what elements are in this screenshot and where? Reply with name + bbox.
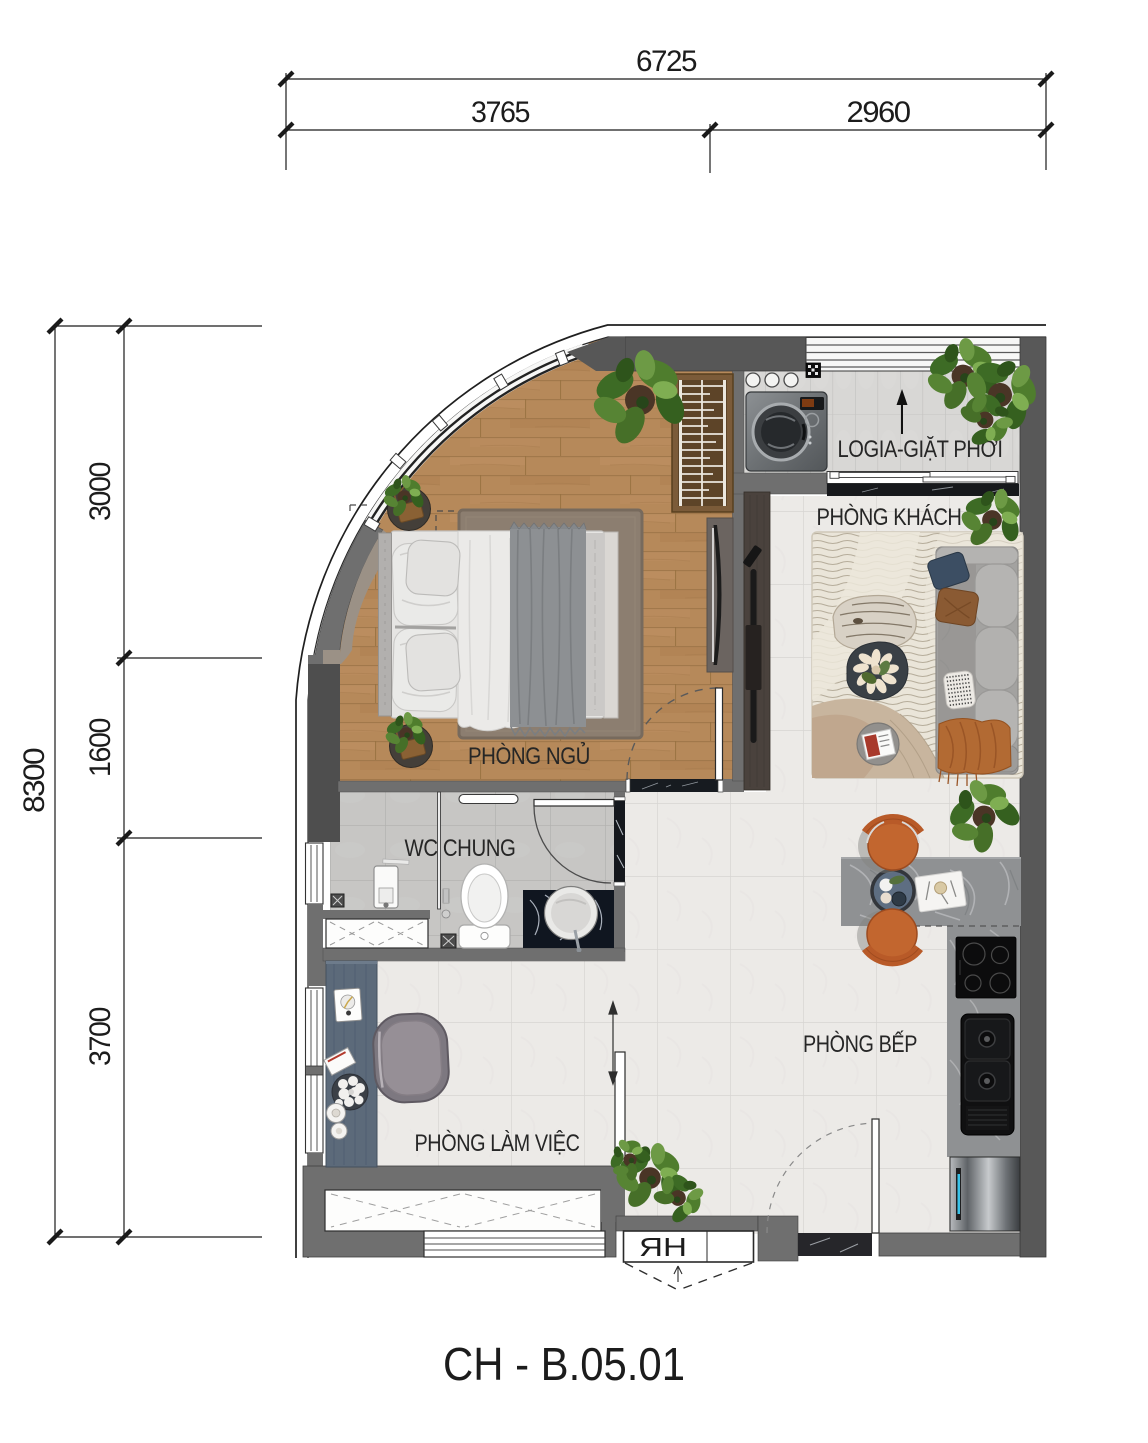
svg-text:ЯH: ЯH [639, 1232, 687, 1262]
svg-text:PHÒNG BẾP: PHÒNG BẾP [803, 1030, 917, 1058]
svg-text:3000: 3000 [84, 462, 117, 521]
svg-text:6725: 6725 [636, 45, 697, 78]
svg-text:CH - B.05.01: CH - B.05.01 [443, 1338, 685, 1390]
svg-text:2960: 2960 [847, 96, 911, 129]
svg-text:PHÒNG LÀM VIỆC: PHÒNG LÀM VIỆC [415, 1130, 580, 1157]
svg-text:WC CHUNG: WC CHUNG [405, 835, 516, 862]
svg-text:PHÒNG KHÁCH: PHÒNG KHÁCH [817, 504, 962, 531]
svg-text:1600: 1600 [84, 718, 117, 777]
svg-text:3700: 3700 [84, 1007, 117, 1066]
svg-text:8300: 8300 [18, 748, 51, 813]
svg-text:3765: 3765 [471, 96, 530, 129]
svg-text:PHÒNG NGỦ: PHÒNG NGỦ [468, 741, 590, 770]
